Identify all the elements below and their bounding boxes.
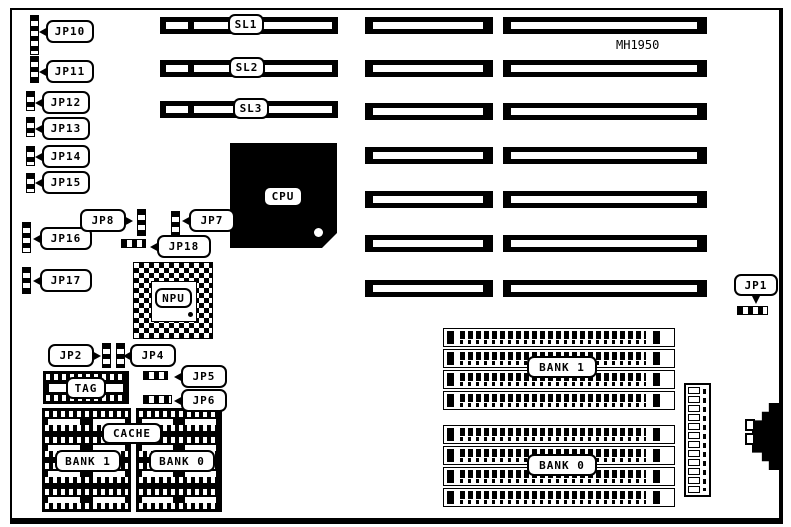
jumper-label-jp8: JP8 (80, 209, 126, 232)
jumper-label-jp7: JP7 (189, 209, 235, 232)
jumper-pins-jp6 (143, 395, 172, 404)
cache-bank1-label: BANK 1 (55, 450, 121, 472)
simm-socket (443, 391, 675, 410)
jumper-label-jp1: JP1 (734, 274, 778, 296)
isa-slot-long (503, 103, 707, 120)
jumper-pins-jp2 (102, 343, 111, 368)
isa-slot-long (503, 235, 707, 252)
callout-pointer (124, 216, 133, 226)
callout-pointer (751, 294, 761, 304)
callout-pointer (35, 98, 44, 108)
keyboard-connector-pin (745, 433, 755, 445)
jumper-pins-jp12 (26, 91, 35, 111)
cpu-label: CPU (263, 186, 303, 207)
isa-slot-long (503, 17, 707, 34)
jumper-label-jp4: JP4 (130, 344, 176, 367)
slot-label-sl1: SL1 (228, 14, 264, 35)
jumper-label-jp10: JP10 (46, 20, 94, 43)
callout-pointer (150, 242, 159, 252)
jumper-label-jp18: JP18 (157, 235, 211, 258)
npu-pin1-dot (188, 312, 193, 317)
callout-pointer (174, 396, 183, 406)
board-model-text: MH1950 (616, 38, 659, 52)
npu-label: NPU (155, 288, 192, 308)
jumper-label-jp12: JP12 (42, 91, 90, 114)
jumper-label-jp2: JP2 (48, 344, 94, 367)
cache-chip-socket (136, 486, 222, 512)
tag-label: TAG (66, 377, 106, 399)
jumper-label-jp13: JP13 (42, 117, 90, 140)
jumper-label-jp17: JP17 (40, 269, 92, 292)
simm-socket (443, 425, 675, 444)
callout-pointer (174, 372, 183, 382)
simm-bank0-label: BANK 0 (527, 454, 597, 476)
jumper-pins-jp5 (143, 371, 168, 380)
isa-slot-short (365, 60, 493, 77)
jumper-pins-jp1 (737, 306, 768, 315)
slot-label-sl2: SL2 (229, 57, 265, 78)
simm-socket (443, 328, 675, 347)
isa-slot-short (365, 280, 493, 297)
jumper-label-jp5: JP5 (181, 365, 227, 388)
motherboard-diagram: MH1950 SL1 SL2 SL3 CPU NPU JP10 JP11 JP1… (0, 0, 791, 527)
cache-chip-socket (42, 486, 131, 512)
jumper-label-jp11: JP11 (46, 60, 94, 83)
jumper-pins-jp17 (22, 267, 31, 294)
cache-bank0-label: BANK 0 (149, 450, 215, 472)
keyboard-connector-pin (745, 419, 755, 431)
callout-pointer (92, 351, 101, 361)
jumper-pins-jp16 (22, 222, 31, 253)
simm-socket (443, 488, 675, 507)
cpu-pin1-dot (314, 228, 323, 237)
jumper-pins-jp11 (30, 56, 39, 83)
jumper-label-jp6: JP6 (181, 389, 227, 412)
jumper-pins-jp15 (26, 173, 35, 193)
isa-slot-long (503, 147, 707, 164)
jumper-label-jp14: JP14 (42, 145, 90, 168)
isa-slot-short (365, 103, 493, 120)
callout-pointer (35, 178, 44, 188)
isa-slot-long (503, 280, 707, 297)
isa-slot-short (365, 17, 493, 34)
slot-label-sl3: SL3 (233, 98, 269, 119)
jumper-pins-jp10 (30, 15, 39, 55)
isa-slot-short (365, 147, 493, 164)
jumper-pins-jp7 (171, 211, 180, 236)
isa-slot-long (503, 60, 707, 77)
callout-pointer (123, 351, 132, 361)
jumper-pins-jp14 (26, 146, 35, 166)
isa-slot-short (365, 191, 493, 208)
power-connector (684, 383, 711, 497)
jumper-label-jp15: JP15 (42, 171, 90, 194)
simm-bank1-label: BANK 1 (527, 356, 597, 378)
isa-slot-long (503, 191, 707, 208)
jumper-pins-jp8 (137, 209, 146, 236)
isa-slot-short (365, 235, 493, 252)
jumper-pins-jp18 (121, 239, 146, 248)
callout-pointer (39, 67, 48, 77)
callout-pointer (35, 124, 44, 134)
callout-pointer (39, 27, 48, 37)
callout-pointer (35, 152, 44, 162)
callout-pointer (33, 234, 42, 244)
cache-label: CACHE (102, 423, 162, 444)
callout-pointer (182, 216, 191, 226)
callout-pointer (33, 276, 42, 286)
jumper-pins-jp13 (26, 117, 35, 137)
